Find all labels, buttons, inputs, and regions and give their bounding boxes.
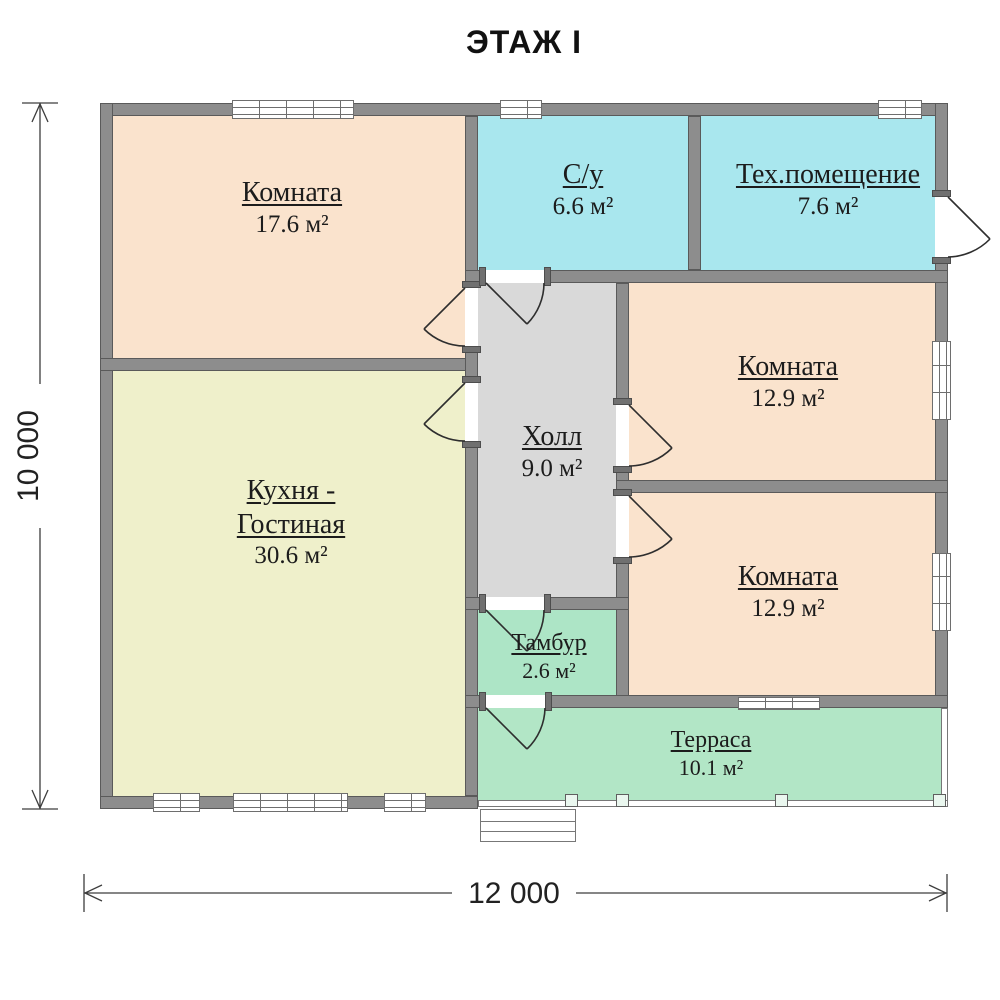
room-area: 9.0 м² (482, 454, 622, 484)
door-leaf-tech-exterior (948, 197, 990, 239)
room-name: Комната (738, 560, 838, 594)
room-area: 12.9 м² (688, 594, 888, 624)
label-kitchen-living: Кухня - Гостиная 30.6 м² (171, 474, 411, 571)
room-name: Комната (738, 350, 838, 384)
door-arc-bedroom-a (629, 448, 672, 466)
room-area: 10.1 м² (601, 755, 821, 781)
door-leaf-bedroom-a (629, 405, 672, 448)
room-name: Тех.помещение (736, 158, 920, 192)
door-arc-kitchen (424, 424, 465, 441)
label-tambour: Тамбур 2.6 м² (484, 629, 614, 684)
door-leaf-terrace (486, 708, 527, 749)
room-name: Холл (522, 420, 582, 454)
door-arc-bedroom-17 (424, 329, 465, 346)
label-bathroom: С/у 6.6 м² (513, 158, 653, 222)
room-area: 2.6 м² (484, 658, 614, 684)
label-terrace: Терраса 10.1 м² (601, 726, 821, 781)
label-hall: Холл 9.0 м² (482, 420, 622, 484)
door-arc-bathroom (527, 283, 544, 324)
room-name: Кухня - (247, 474, 336, 508)
room-area: 30.6 м² (171, 541, 411, 571)
room-name: С/у (563, 158, 603, 192)
door-leaf-bedroom-17 (424, 288, 465, 329)
room-area: 7.6 м² (703, 192, 953, 222)
room-area: 6.6 м² (513, 192, 653, 222)
label-bedroom-b: Комната 12.9 м² (688, 560, 888, 624)
dimension-lines (22, 103, 947, 912)
door-leaf-bathroom (486, 283, 527, 324)
label-bedroom-17: Комната 17.6 м² (192, 176, 392, 240)
room-name: Гостиная (237, 508, 345, 542)
door-arc-terrace (527, 708, 545, 749)
label-tech-room: Тех.помещение 7.6 м² (703, 158, 953, 222)
door-arc-bedroom-b (629, 539, 672, 557)
floor-plan: 10 000 12 000 ЭТАЖ I Комната 17.6 м² С/у… (0, 0, 1000, 1000)
room-name: Тамбур (511, 629, 586, 658)
doors-and-dimensions-layer: 10 000 12 000 (0, 0, 1000, 1000)
room-area: 17.6 м² (192, 210, 392, 240)
label-bedroom-a: Комната 12.9 м² (688, 350, 888, 414)
page-title: ЭТАЖ I (100, 24, 948, 61)
door-leaf-kitchen (424, 383, 465, 424)
dim-label-height: 10 000 (12, 410, 45, 502)
room-area: 12.9 м² (688, 384, 888, 414)
room-name: Комната (242, 176, 342, 210)
room-name: Терраса (671, 726, 752, 755)
door-leaf-bedroom-b (629, 496, 672, 539)
door-arc-tech-exterior (948, 239, 990, 257)
dim-label-width: 12 000 (468, 877, 560, 910)
